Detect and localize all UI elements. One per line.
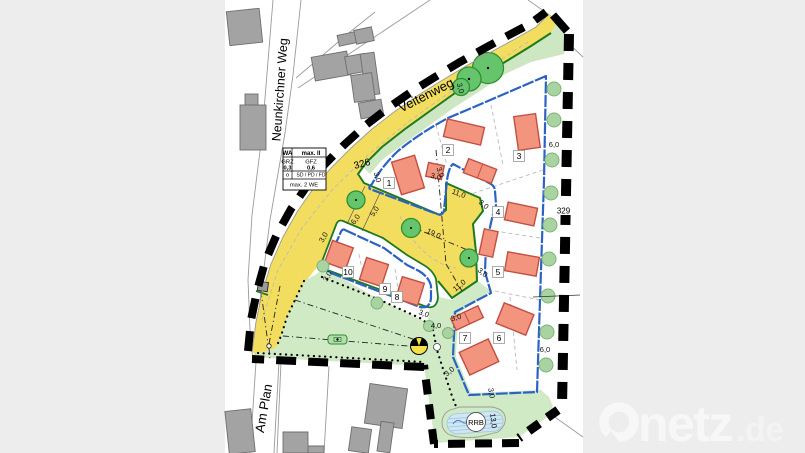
svg-text:RRB: RRB (468, 418, 484, 427)
svg-text:4,0: 4,0 (431, 321, 441, 330)
svg-text:3,0: 3,0 (486, 387, 497, 399)
svg-text:netz: netz (638, 396, 733, 452)
svg-text:max. 2 WE: max. 2 WE (290, 183, 318, 189)
svg-text:9: 9 (383, 284, 388, 294)
svg-text:6: 6 (497, 333, 502, 343)
svg-text:max. II: max. II (302, 151, 321, 157)
svg-text:.de: .de (736, 411, 784, 449)
svg-text:0,6: 0,6 (307, 166, 316, 172)
svg-text:5: 5 (496, 267, 501, 277)
svg-text:o: o (286, 173, 289, 179)
svg-text:3: 3 (517, 151, 522, 161)
svg-text:WA: WA (283, 151, 293, 157)
svg-text:1: 1 (387, 178, 392, 188)
svg-text:6,0: 6,0 (540, 345, 550, 354)
svg-text:2: 2 (446, 145, 451, 155)
svg-text:8: 8 (395, 292, 400, 302)
svg-text:13,0: 13,0 (488, 413, 499, 429)
svg-text:6,0: 6,0 (549, 140, 559, 149)
svg-text:4: 4 (496, 207, 501, 217)
svg-text:7: 7 (463, 333, 468, 343)
svg-text:0,3: 0,3 (283, 166, 292, 172)
svg-text:10: 10 (343, 267, 353, 277)
svg-text:SD / PD / FD: SD / PD / FD (297, 173, 326, 179)
svg-text:329: 329 (557, 207, 571, 216)
